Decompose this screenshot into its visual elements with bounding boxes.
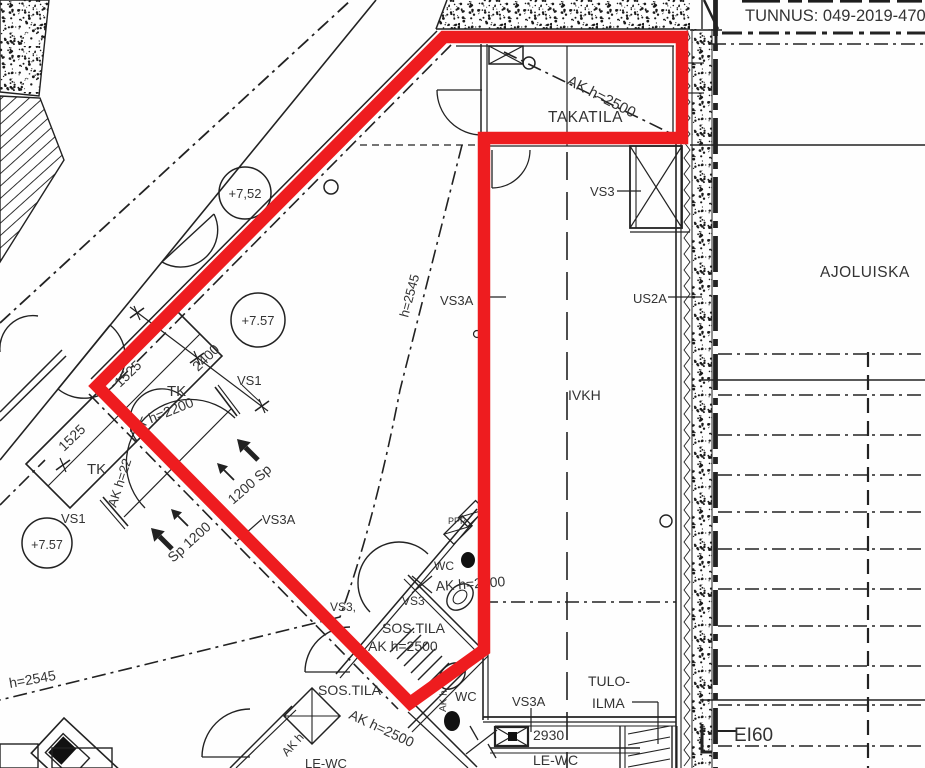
svg-text:TK: TK <box>167 383 186 400</box>
svg-text:VS1: VS1 <box>61 511 86 526</box>
svg-text:US2A: US2A <box>633 291 667 306</box>
svg-text:IVKH: IVKH <box>568 387 601 403</box>
svg-text:ILMA: ILMA <box>592 695 625 711</box>
svg-text:TK: TK <box>87 461 106 478</box>
svg-text:VS3,: VS3, <box>330 600 356 614</box>
svg-text:WC: WC <box>434 559 454 573</box>
svg-text:+7.57: +7.57 <box>31 538 63 552</box>
svg-text:VS3: VS3 <box>590 184 615 199</box>
svg-text:SOS.TILA: SOS.TILA <box>382 620 446 636</box>
svg-text:AJOLUISKA: AJOLUISKA <box>820 264 910 281</box>
svg-text:+7.57: +7.57 <box>242 313 275 328</box>
svg-text:TULO-: TULO- <box>588 673 630 689</box>
svg-text:2930: 2930 <box>533 727 564 743</box>
svg-text:VS1: VS1 <box>237 373 262 388</box>
svg-text:LE-WC: LE-WC <box>533 752 578 768</box>
svg-text:EI60: EI60 <box>734 725 773 746</box>
svg-text:WC: WC <box>455 689 477 704</box>
svg-text:LE-WC: LE-WC <box>305 756 347 768</box>
svg-text:+7,52: +7,52 <box>229 186 262 201</box>
svg-text:SOS.TILA: SOS.TILA <box>318 682 382 698</box>
svg-text:AK h=2500: AK h=2500 <box>368 638 438 654</box>
svg-text:VS3: VS3 <box>402 594 425 608</box>
svg-text:AK h: AK h <box>438 690 450 712</box>
svg-text:TUNNUS: 049-2019-470: TUNNUS: 049-2019-470 <box>745 7 925 25</box>
svg-text:VS3A: VS3A <box>512 694 546 709</box>
svg-text:VS3A: VS3A <box>440 293 474 308</box>
svg-text:PPP: PPP <box>448 516 466 526</box>
svg-text:VS3A: VS3A <box>262 512 296 527</box>
